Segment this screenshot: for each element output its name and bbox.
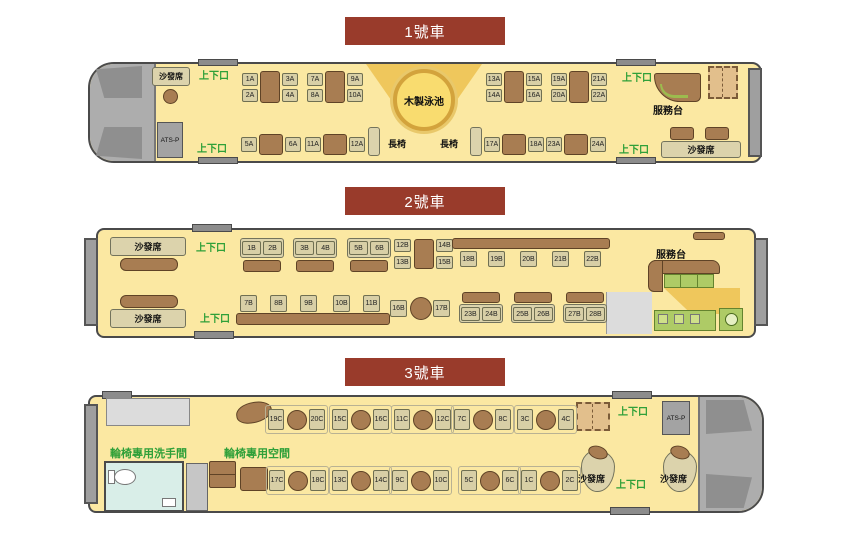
- car1-luggage-divider: [722, 68, 723, 97]
- seat-12A: 12A: [349, 137, 365, 152]
- car2-sofa-table-top: [120, 258, 178, 271]
- seat-20C: 20C: [309, 409, 325, 430]
- car3-door-top-right: [612, 391, 652, 399]
- car1-long-bench-1: [368, 127, 380, 156]
- seat-1C: 1C: [521, 470, 537, 491]
- car1-sofa-bottom-right-label: 沙發席: [687, 143, 714, 156]
- car2-kitchen-cell-2: [674, 314, 684, 324]
- seat-18B: 18B: [460, 251, 477, 267]
- seat-13C: 13C: [332, 470, 348, 491]
- car3-cab-windshield-top: [706, 400, 752, 434]
- seat-21B: 21B: [552, 251, 569, 267]
- car2-service-counter-v: [648, 260, 663, 292]
- seat-19C: 19C: [268, 409, 284, 430]
- car3-round-table: [351, 471, 371, 491]
- seat-16B: 16B: [390, 300, 407, 317]
- car2-booth-table: [243, 260, 281, 272]
- seat-6C: 6C: [502, 470, 518, 491]
- car2-galley-divider-1: [680, 275, 681, 287]
- seat-9A: 9A: [347, 73, 363, 86]
- seat-4B: 4B: [316, 241, 335, 255]
- car1-title-banner: 1號車: [345, 17, 505, 45]
- seat-8B: 8B: [270, 295, 287, 312]
- car3-title: 3號車: [404, 362, 445, 383]
- seat-2A: 2A: [242, 89, 258, 102]
- car1-cab-windshield-bottom: [96, 127, 142, 159]
- car2-gangway-left: [84, 238, 98, 326]
- car3-luggage-divider: [592, 404, 593, 429]
- car3-round-table: [287, 410, 307, 430]
- seat-23B: 23B: [461, 307, 480, 321]
- car2-mid-round-table: [410, 297, 432, 320]
- car1-atsp-label: ATS-P: [161, 137, 180, 144]
- car3-luggage-rack: [576, 402, 610, 431]
- car3-closet: [186, 463, 208, 511]
- car1-luggage-rack: [708, 66, 738, 99]
- car3-sink: [162, 498, 176, 507]
- car2-sofa-bottom-left: 沙發席: [110, 309, 186, 328]
- car1-bench-label-2: 長椅: [440, 137, 458, 150]
- seat-15A: 15A: [526, 73, 542, 86]
- car1-pair-table: [564, 134, 588, 155]
- seat-22B: 22B: [584, 251, 601, 267]
- car2-window-counter-top: [452, 238, 610, 249]
- car1-sofa-table-1: [670, 127, 694, 140]
- seat-12B: 12B: [394, 239, 411, 252]
- seat-9C: 9C: [392, 470, 408, 491]
- car3-cabinet-divider: [210, 474, 235, 475]
- seat-20A: 20A: [551, 89, 567, 102]
- car3-cab-windshield-bottom: [706, 474, 752, 508]
- car3-toilet: [114, 469, 136, 485]
- car2-kitchen-cell-1: [658, 314, 668, 324]
- seat-22A: 22A: [591, 89, 607, 102]
- car3-round-table: [413, 410, 433, 430]
- seat-26B: 26B: [534, 307, 553, 321]
- seat-19A: 19A: [551, 73, 567, 86]
- car1-bench-label-1: 長椅: [388, 137, 406, 150]
- car2-gangway-right: [754, 238, 768, 326]
- seat-17C: 17C: [269, 470, 285, 491]
- car1-pair-table: [323, 134, 347, 155]
- car3-door-label-tr: 上下口: [618, 403, 648, 418]
- car3-round-table: [540, 471, 560, 491]
- seat-5B: 5B: [349, 241, 368, 255]
- car1-sofa-top-left-label: 沙發席: [159, 71, 183, 82]
- seat-15B: 15B: [436, 256, 453, 269]
- seat-13B: 13B: [394, 256, 411, 269]
- car1-sofa-bottom-right: 沙發席: [661, 141, 741, 158]
- seat-14B: 14B: [436, 239, 453, 252]
- car3-sofa-label-1: 沙發席: [578, 472, 605, 485]
- car2-galley-appliances: [664, 274, 714, 288]
- seat-2C: 2C: [562, 470, 578, 491]
- car1-pool-label: 木製泳池: [404, 93, 444, 108]
- car3-companion-seat: [240, 467, 268, 491]
- seat-8A: 8A: [307, 89, 323, 102]
- car3-gangway-left: [84, 404, 98, 504]
- car1-door-top-left: [198, 59, 238, 66]
- car1-cab-windshield-top: [96, 66, 142, 98]
- car1-pair-table: [259, 134, 283, 155]
- car3-title-banner: 3號車: [345, 358, 505, 386]
- car2-service-label: 服務台: [656, 246, 686, 261]
- car2-window-counter-bottom: [236, 313, 390, 325]
- seat-17B: 17B: [433, 300, 450, 317]
- seat-6A: 6A: [285, 137, 301, 152]
- car2-booth-table: [514, 292, 552, 303]
- car2-kitchen-cell-3: [690, 314, 700, 324]
- seat-14A: 14A: [486, 89, 502, 102]
- seat-17A: 17A: [484, 137, 500, 152]
- car1-door-label-tr: 上下口: [622, 69, 652, 84]
- seat-12C: 12C: [435, 409, 451, 430]
- car1-wooden-pool: 木製泳池: [393, 69, 455, 131]
- car1-quad-table: [325, 71, 345, 103]
- car1-gangway-right: [748, 68, 762, 157]
- car1-title: 1號車: [404, 21, 445, 42]
- car3-door-bottom-right: [610, 507, 650, 515]
- train-floorplan: 1號車 沙發席 ATS-P 上下口 上下口 上下口 上下口 木製泳池 長椅 長椅…: [0, 0, 848, 535]
- seat-5C: 5C: [461, 470, 477, 491]
- seat-25B: 25B: [513, 307, 532, 321]
- seat-10A: 10A: [347, 89, 363, 102]
- seat-11B: 11B: [363, 295, 380, 312]
- seat-18A: 18A: [528, 137, 544, 152]
- car2-booth-table: [350, 260, 388, 272]
- car3-round-table: [480, 471, 500, 491]
- seat-9B: 9B: [300, 295, 317, 312]
- car2-title: 2號車: [404, 191, 445, 212]
- car2-sofa-bottom-left-label: 沙發席: [134, 312, 161, 325]
- car3-round-table: [411, 471, 431, 491]
- car2-vpair-table: [414, 239, 434, 269]
- car2-door-top-left: [192, 224, 232, 232]
- car1-quad-table: [569, 71, 589, 103]
- seat-24B: 24B: [482, 307, 501, 321]
- seat-16C: 16C: [373, 409, 389, 430]
- car3-door-label-br: 上下口: [616, 476, 646, 491]
- car1-pair-table: [502, 134, 526, 155]
- car1-door-bottom-left: [198, 157, 238, 164]
- car2-title-banner: 2號車: [345, 187, 505, 215]
- seat-11C: 11C: [394, 409, 410, 430]
- car3-round-table: [288, 471, 308, 491]
- car3-luggage-shelf: [106, 398, 190, 426]
- seat-27B: 27B: [565, 307, 584, 321]
- seat-10B: 10B: [333, 295, 350, 312]
- car2-sofa-top-left-label: 沙發席: [134, 240, 161, 253]
- car3-atsp-box: ATS-P: [662, 401, 690, 435]
- seat-3C: 3C: [517, 409, 533, 430]
- car3-round-table: [536, 410, 556, 430]
- car2-booth-table: [462, 292, 500, 303]
- car1-door-bottom-right: [616, 157, 656, 164]
- seat-24A: 24A: [590, 137, 606, 152]
- seat-21A: 21A: [591, 73, 607, 86]
- car2-booth-table: [296, 260, 334, 272]
- car1-door-label-bl: 上下口: [197, 140, 227, 155]
- seat-11A: 11A: [305, 137, 321, 152]
- car3-sofa-label-2: 沙發席: [660, 472, 687, 485]
- car1-sofa-table-2: [705, 127, 729, 140]
- car3-round-table: [351, 410, 371, 430]
- seat-28B: 28B: [586, 307, 605, 321]
- car2-door-bottom-left: [194, 331, 234, 339]
- car3-atsp-label: ATS-P: [667, 415, 686, 422]
- seat-23A: 23A: [546, 137, 562, 152]
- car1-door-top-right: [616, 59, 656, 66]
- car1-long-bench-2: [470, 127, 482, 156]
- car2-door-label-tl: 上下口: [196, 239, 226, 254]
- seat-19B: 19B: [488, 251, 505, 267]
- car1-round-table-left: [163, 89, 178, 104]
- car1-door-label-br: 上下口: [619, 141, 649, 156]
- car1-atsp-box: ATS-P: [157, 122, 183, 158]
- seat-3A: 3A: [282, 73, 298, 86]
- car2-sink-basin: [725, 313, 738, 326]
- car3-round-table: [473, 410, 493, 430]
- car2-galley-divider-2: [697, 275, 698, 287]
- car3-space-label: 輪椅專用空間: [224, 445, 290, 461]
- seat-15C: 15C: [332, 409, 348, 430]
- seat-7B: 7B: [240, 295, 257, 312]
- car1-service-label: 服務台: [653, 102, 683, 117]
- car3-toilet-tank: [108, 470, 115, 484]
- car1-quad-table: [504, 71, 524, 103]
- car2-vestibule-floor: [606, 292, 652, 334]
- seat-8C: 8C: [495, 409, 511, 430]
- seat-3B: 3B: [295, 241, 314, 255]
- seat-5A: 5A: [241, 137, 257, 152]
- car2-door-label-bl: 上下口: [200, 310, 230, 325]
- car2-booth-table: [566, 292, 604, 303]
- car2-sofa-top-left: 沙發席: [110, 237, 186, 256]
- seat-7A: 7A: [307, 73, 323, 86]
- seat-10C: 10C: [433, 470, 449, 491]
- seat-14C: 14C: [373, 470, 389, 491]
- seat-18C: 18C: [310, 470, 326, 491]
- car2-sofa-table-bottom: [120, 295, 178, 308]
- car1-quad-table: [260, 71, 280, 103]
- seat-6B: 6B: [370, 241, 389, 255]
- seat-1B: 1B: [242, 241, 261, 255]
- seat-13A: 13A: [486, 73, 502, 86]
- seat-2B: 2B: [263, 241, 282, 255]
- seat-4C: 4C: [558, 409, 574, 430]
- car3-restroom-label: 輪椅專用洗手間: [110, 445, 187, 461]
- seat-20B: 20B: [520, 251, 537, 267]
- seat-1A: 1A: [242, 73, 258, 86]
- seat-4A: 4A: [282, 89, 298, 102]
- seat-16A: 16A: [526, 89, 542, 102]
- seat-7C: 7C: [454, 409, 470, 430]
- car1-door-label-tl: 上下口: [199, 67, 229, 82]
- car1-sofa-top-left: 沙發席: [152, 67, 190, 86]
- car2-overhead-rack: [693, 232, 725, 240]
